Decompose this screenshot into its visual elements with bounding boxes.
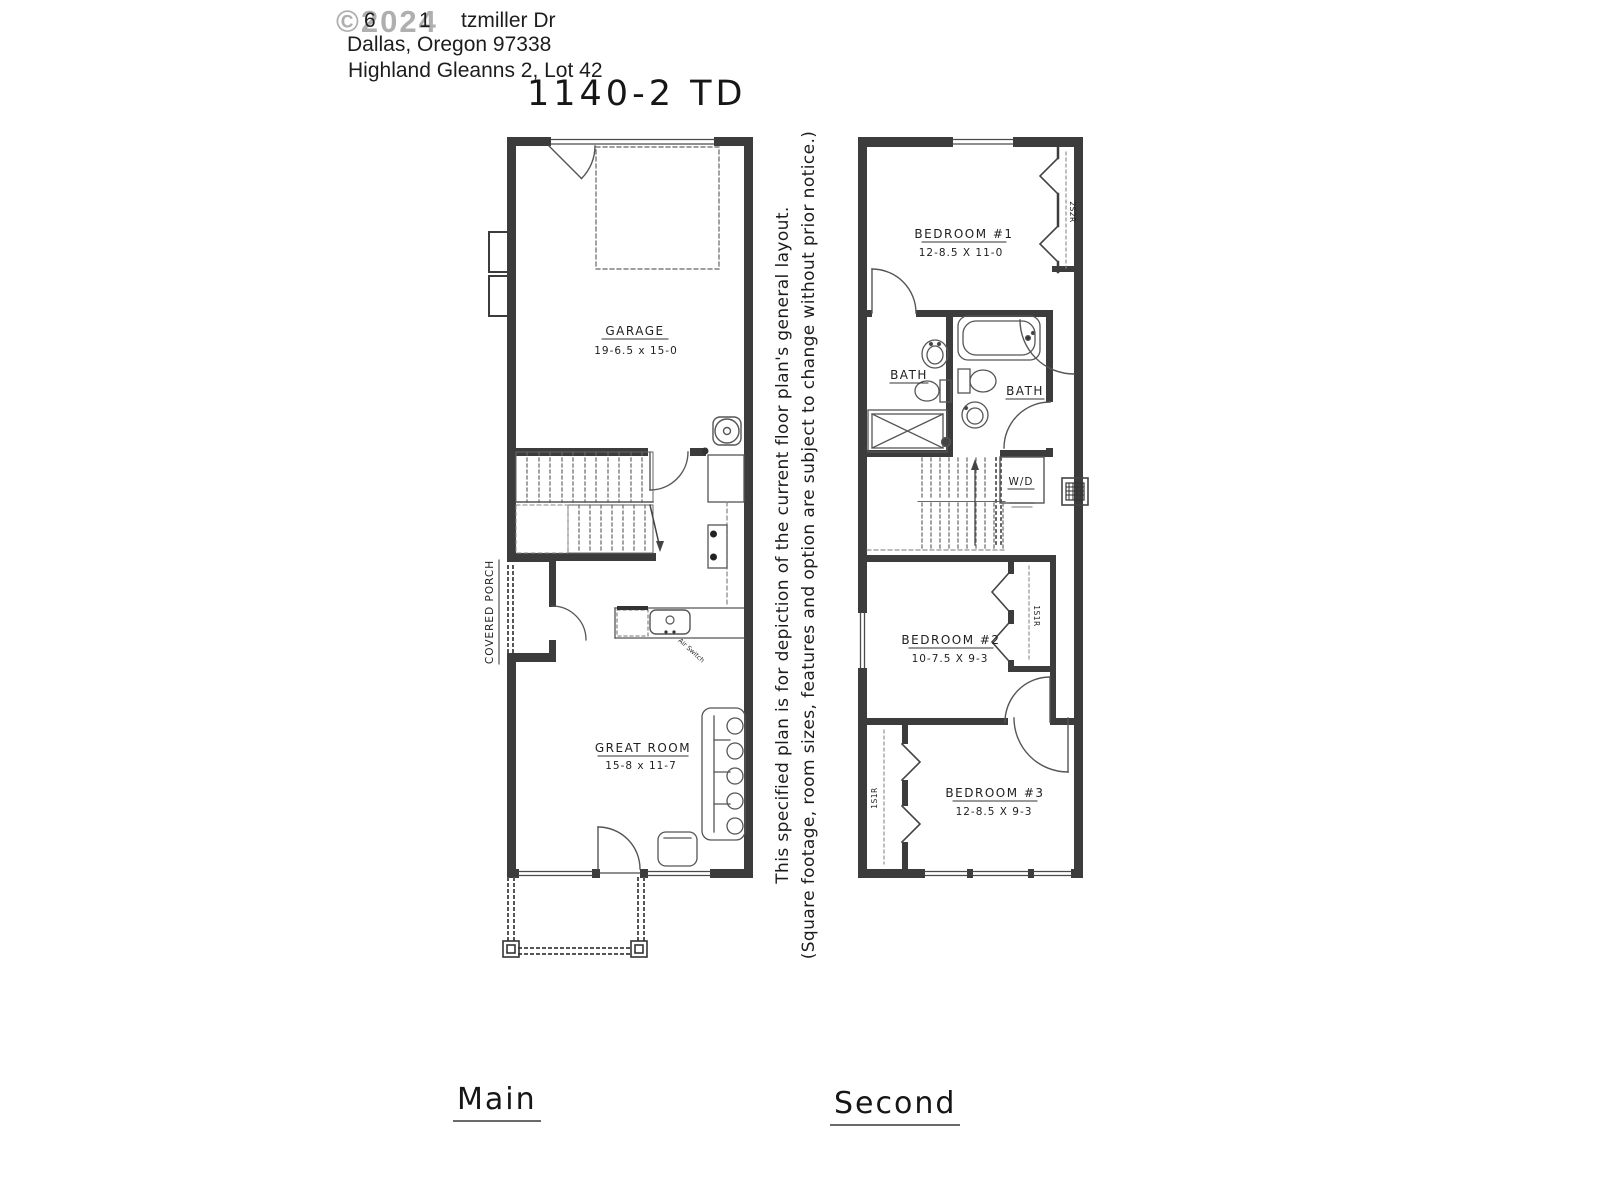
bedroom2-closet-label: 1S1R (1032, 605, 1041, 627)
covered-porch-label: COVERED PORCH (484, 560, 496, 664)
bath-2-fixtures (958, 316, 1040, 428)
garage-entry-door (650, 452, 688, 490)
rear-door (598, 827, 640, 869)
pantry-fridge (708, 455, 744, 502)
air-switch-label: Air Switch (677, 637, 706, 665)
kitchen-sink (650, 610, 690, 634)
floor-plan-drawing: GARAGE 19-6.5 x 15-0 GREAT ROOM 15-8 x 1… (0, 0, 1600, 1200)
bedroom1-dims: 12-8.5 X 11-0 (919, 247, 1004, 259)
garage-man-door (549, 146, 595, 179)
door-stop (702, 448, 709, 455)
second-doors (872, 269, 1074, 772)
great-room-dims: 15-8 x 11-7 (605, 760, 677, 772)
range-stove (708, 525, 727, 568)
toilet (958, 369, 970, 393)
bedroom2-dims: 10-7.5 X 9-3 (912, 653, 989, 665)
bedroom2-label: BEDROOM #2 (901, 633, 1000, 647)
second-floor-plan: BEDROOM #1 12-8.5 X 11-0 2S2R BATH BATH … (858, 137, 1088, 878)
second-stairs (867, 458, 1005, 550)
bedroom1-label: BEDROOM #1 (914, 227, 1013, 241)
main-stairs (516, 452, 664, 553)
water-heater (713, 417, 741, 445)
toilet (915, 381, 939, 401)
patio-outline (508, 878, 644, 954)
laundry-label: W/D (1008, 476, 1033, 488)
floor-plan-sheet: ©2024 6 1 tzmiller Dr Dallas, Oregon 973… (0, 0, 1600, 1200)
stair-direction-arrow (656, 541, 664, 552)
bedroom3-dims: 12-8.5 X 9-3 (956, 806, 1033, 818)
main-windows (519, 872, 710, 876)
covered-porch (508, 566, 586, 652)
garage-dashed-area (596, 147, 719, 269)
bath2-label: BATH (1006, 384, 1044, 398)
utility-meter-boxes (489, 232, 508, 316)
bath-1-fixtures (868, 340, 951, 452)
great-room-label: GREAT ROOM (595, 741, 691, 755)
main-floor-plan: GARAGE 19-6.5 x 15-0 GREAT ROOM 15-8 x 1… (484, 137, 753, 957)
bedroom3-label: BEDROOM #3 (945, 786, 1044, 800)
bedroom1-closet-label: 2S2R (1068, 201, 1077, 223)
bedroom3-closet-label: 1S1R (870, 787, 879, 809)
stair-direction-arrow (971, 459, 979, 470)
dishwasher (617, 610, 648, 636)
bath1-label: BATH (890, 368, 928, 382)
front-door (552, 606, 586, 640)
garage-dims: 19-6.5 x 15-0 (594, 345, 678, 357)
bedroom3-closet (884, 725, 920, 869)
sofa (702, 708, 745, 840)
garage-door-opening (551, 140, 714, 145)
armchair (658, 832, 697, 866)
garage-label: GARAGE (605, 324, 664, 338)
